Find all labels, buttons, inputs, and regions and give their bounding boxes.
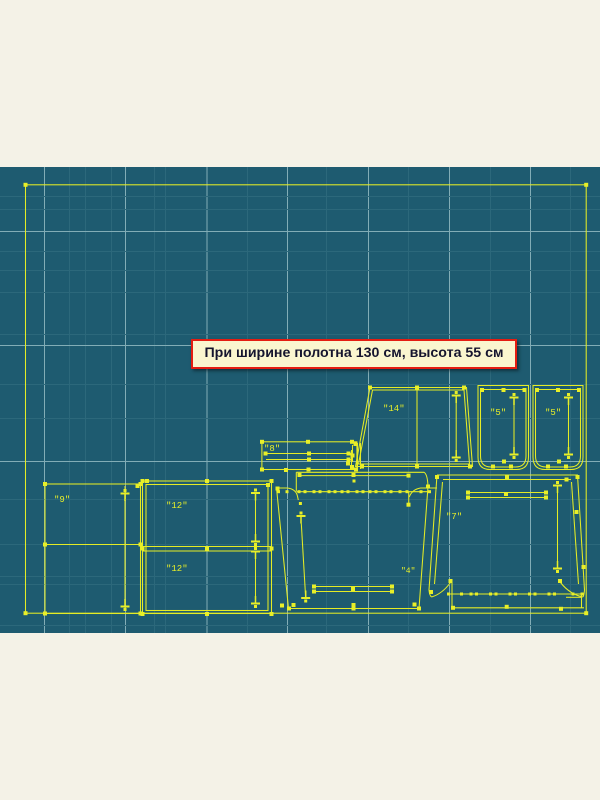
svg-text:"8": "8": [264, 444, 280, 454]
svg-text:"14": "14": [383, 404, 405, 414]
svg-text:"5": "5": [545, 408, 561, 418]
svg-text:"7": "7": [446, 512, 462, 522]
svg-text:"12": "12": [166, 564, 188, 574]
svg-text:"9": "9": [54, 495, 70, 505]
svg-text:"5": "5": [490, 408, 506, 418]
svg-text:"12": "12": [166, 501, 188, 511]
svg-text:"4": "4": [401, 567, 415, 576]
